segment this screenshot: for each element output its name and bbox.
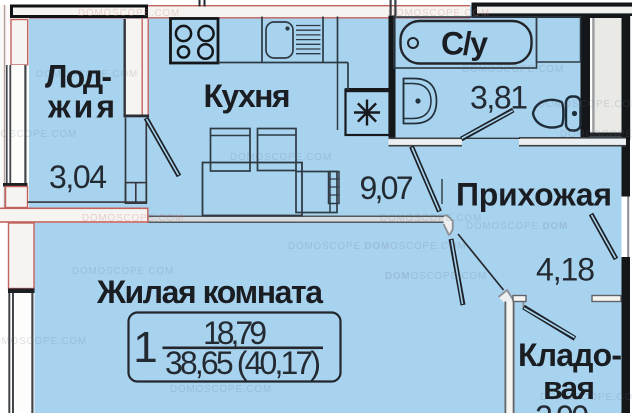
svg-text:4,18: 4,18 [536, 252, 595, 288]
svg-text:1: 1 [133, 323, 157, 372]
svg-text:3,04: 3,04 [49, 159, 107, 195]
svg-text:DOMOSCOPE.COM: DOMOSCOPE.COM [538, 99, 632, 110]
svg-text:Прихожая: Прихожая [456, 177, 612, 213]
svg-text:Жилая комната: Жилая комната [96, 274, 323, 310]
svg-text:DOMOSCOPE.COM: DOMOSCOPE.COM [170, 384, 272, 395]
svg-text:Кухня: Кухня [204, 78, 291, 114]
svg-text:С/у: С/у [441, 26, 488, 62]
svg-text:DOMOSCOPE.COM: DOMOSCOPE.COM [0, 129, 77, 140]
svg-text:DOMOSCOPE.COM: DOMOSCOPE.COM [560, 129, 632, 140]
svg-text:DOMOSCOPE.COM: DOMOSCOPE.COM [388, 8, 490, 19]
svg-text:DOMOSCOPE.COM: DOMOSCOPE.COM [78, 8, 180, 19]
svg-text:DOMOSCOPE.COM: DOMOSCOPE.COM [230, 152, 332, 163]
svg-text:DOMOSCOPE.COM: DOMOSCOPE.COM [82, 213, 184, 224]
svg-text:DOMOSCOPE.COM: DOMOSCOPE.COM [0, 336, 87, 347]
svg-text:DOMOSCOPE.DOMOSCOPE.COM: DOMOSCOPE.DOMOSCOPE.COM [288, 241, 467, 252]
svg-text:38,65 (40,17): 38,65 (40,17) [165, 345, 321, 381]
svg-text:9,07: 9,07 [360, 170, 414, 206]
svg-text:жия: жия [47, 89, 115, 125]
svg-text:2,90: 2,90 [535, 399, 589, 413]
svg-text:Кладо-: Кладо- [518, 337, 622, 373]
svg-text:DOMOSCOPE.COM: DOMOSCOPE.COM [462, 64, 564, 75]
svg-text:DOMOSCOPE.DOM: DOMOSCOPE.DOM [466, 221, 568, 232]
svg-text:DOMOSCOPE.COM: DOMOSCOPE.COM [385, 271, 487, 282]
svg-text:3,81: 3,81 [470, 80, 528, 116]
